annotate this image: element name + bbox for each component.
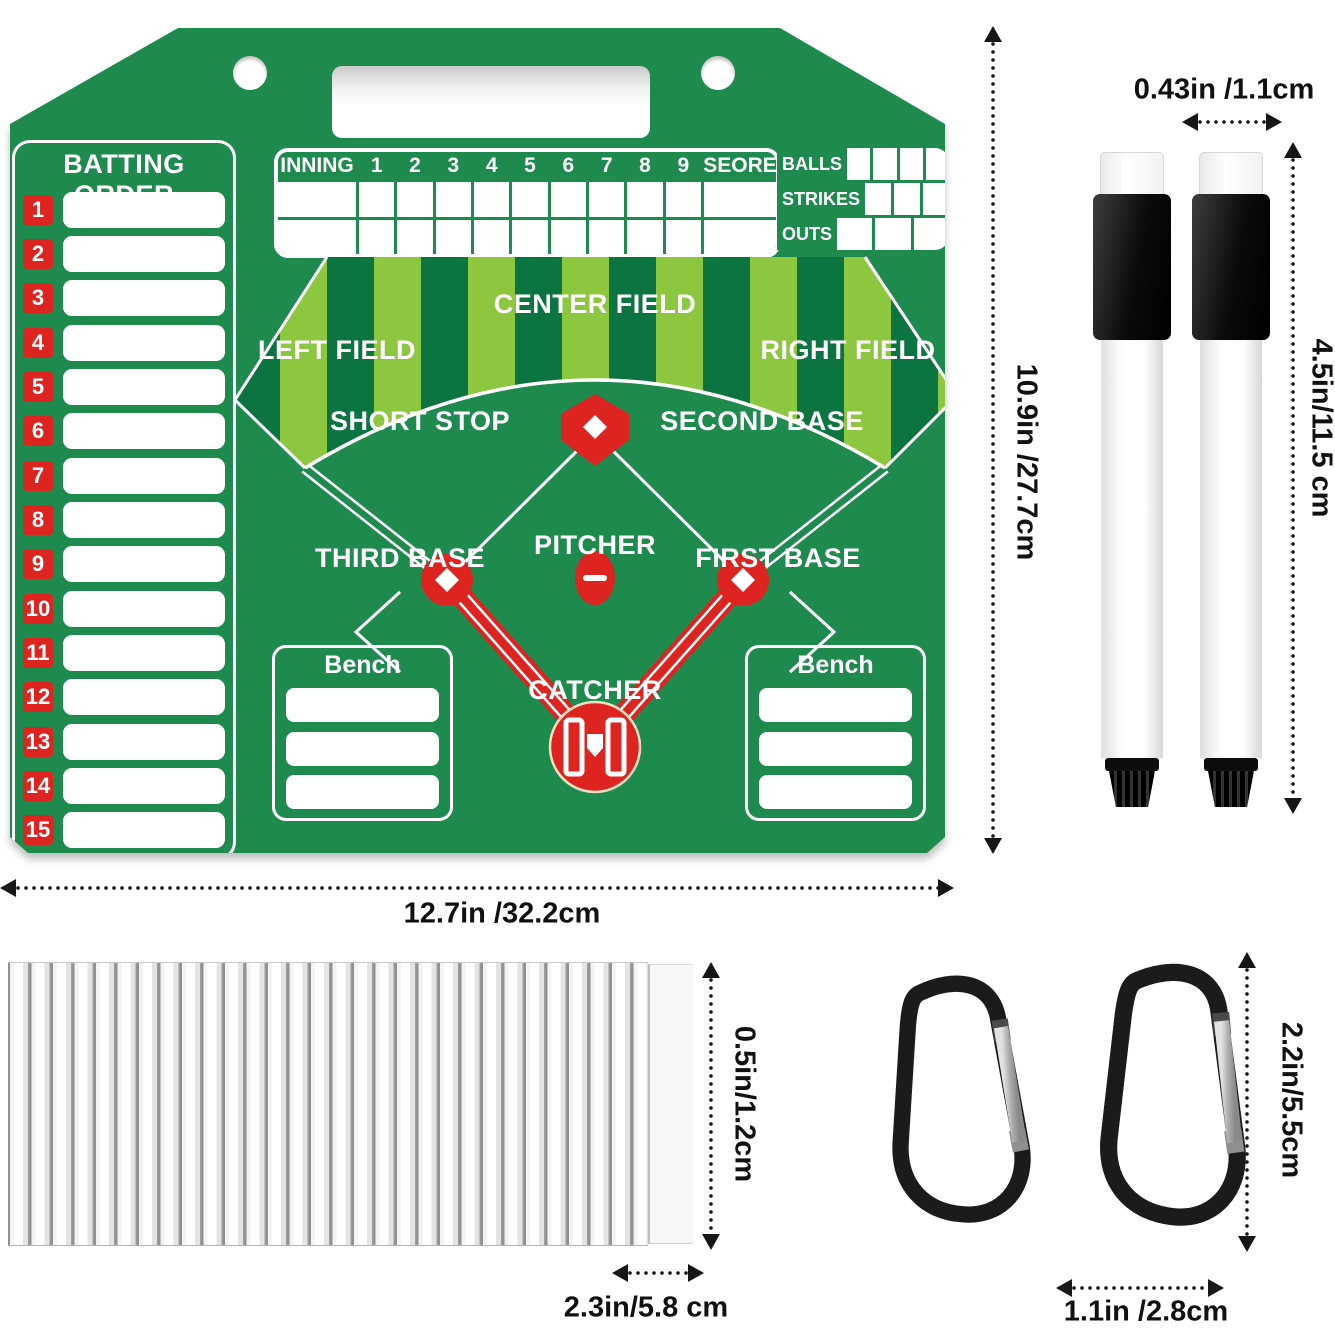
magnetic-card-stack [8, 962, 692, 1246]
bench-title: Bench [275, 651, 450, 680]
bench-name-slot [759, 732, 912, 766]
scoreboard-clipboard: BATTING ORDER 123456789101112131415 INNI… [10, 28, 945, 853]
bench-slots [759, 688, 912, 809]
dim-carabiner-width-line [1070, 1286, 1210, 1290]
bench-title: Bench [748, 651, 923, 680]
marker-eraser-cap [1100, 152, 1164, 197]
marker-tail-ring [1204, 758, 1258, 771]
marker-cap [1192, 194, 1270, 340]
dim-board-height-label: 10.9in /27.7cm [1010, 364, 1043, 561]
carabiner-gate [1222, 1021, 1235, 1143]
bench-name-slot [759, 775, 912, 809]
bench-name-slot [759, 688, 912, 722]
label-left-field: LEFT FIELD [258, 335, 416, 365]
dim-marker-length-line [1291, 156, 1295, 800]
pitcher-dash-icon [583, 575, 607, 581]
label-first-base: FIRST BASE [695, 543, 861, 573]
label-third-base: THIRD BASE [315, 543, 485, 573]
dim-card-width-label: 2.3in/5.8 cm [564, 1292, 728, 1325]
board-surface: BATTING ORDER 123456789101112131415 INNI… [10, 28, 945, 853]
dim-board-width-line [14, 886, 940, 890]
label-catcher: CATCHER [528, 675, 662, 705]
bench-panel-right: Bench [745, 645, 926, 821]
carabiner-2 [1070, 956, 1282, 1250]
marker-tail-ring [1105, 758, 1159, 771]
marker-eraser-cap [1199, 152, 1263, 197]
dim-card-thickness-line [709, 976, 713, 1236]
dim-marker-length-label: 4.5in/11.5 cm [1305, 339, 1335, 518]
label-second-base: SECOND BASE [660, 406, 864, 436]
dim-marker-width-line [1196, 120, 1268, 124]
dry-erase-marker-2 [1191, 152, 1271, 807]
bench-name-slot [286, 732, 439, 766]
dim-carabiner-width-label: 1.1in /2.8cm [1064, 1296, 1228, 1329]
marker-barrel [1101, 340, 1163, 758]
dim-board-height-line [991, 40, 995, 840]
marker-cap [1093, 194, 1171, 340]
dim-card-width-line [626, 1271, 690, 1275]
marker-barrel [1200, 340, 1262, 758]
dry-erase-marker-1 [1092, 152, 1172, 807]
label-right-field: RIGHT FIELD [761, 335, 936, 365]
bench-name-slot [286, 688, 439, 722]
marker-tail-cap [1109, 771, 1155, 807]
dim-board-width-label: 12.7in /32.2cm [404, 898, 601, 931]
bench-slots [286, 688, 439, 809]
card-stack-edges [8, 962, 648, 1246]
bench-panel-left: Bench [272, 645, 453, 821]
card-stack-front [648, 964, 694, 1244]
label-center-field: CENTER FIELD [494, 289, 697, 319]
carabiner-gate [1001, 1027, 1019, 1143]
bench-name-slot [286, 775, 439, 809]
carabiner-body [1109, 972, 1238, 1217]
carabiner-1 [862, 968, 1062, 1246]
dim-card-thickness-label: 0.5in/1.2cm [728, 1026, 761, 1182]
marker-tail-cap [1208, 771, 1254, 807]
label-pitcher: PITCHER [534, 530, 656, 560]
label-short-stop: SHORT STOP [330, 406, 510, 436]
product-image: BATTING ORDER 123456789101112131415 INNI… [0, 0, 1335, 1335]
dim-marker-width-label: 0.43in /1.1cm [1134, 74, 1315, 107]
